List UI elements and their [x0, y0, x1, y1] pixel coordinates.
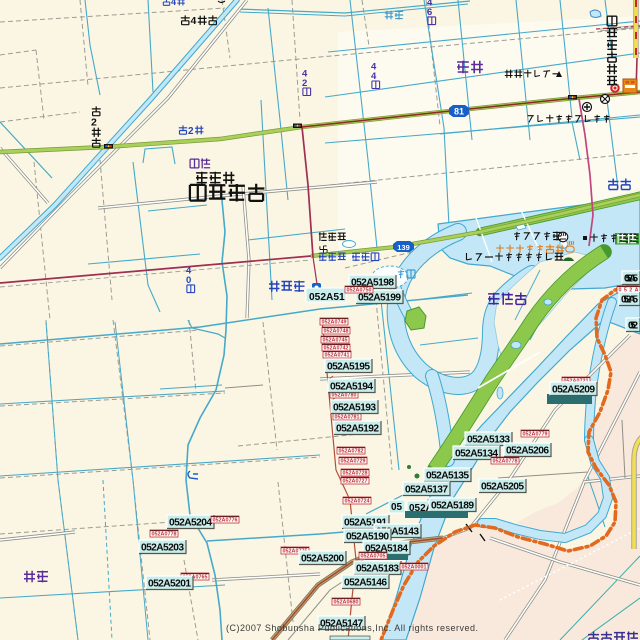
- svg-text:052A0749: 052A0749: [322, 320, 347, 326]
- svg-text:052A0728: 052A0728: [343, 471, 368, 477]
- svg-text:052A5137: 052A5137: [405, 485, 448, 496]
- svg-text:052A0745: 052A0745: [323, 338, 348, 344]
- svg-text:052A0729: 052A0729: [341, 459, 366, 465]
- svg-text:6: 6: [427, 7, 432, 18]
- svg-text:052A5146: 052A5146: [344, 578, 387, 589]
- svg-text:81: 81: [454, 107, 464, 117]
- svg-text:052A0001: 052A0001: [402, 565, 427, 571]
- svg-text:2: 2: [91, 117, 97, 129]
- svg-text:052A51: 052A51: [309, 292, 345, 303]
- svg-text:052A0780: 052A0780: [332, 393, 357, 399]
- svg-text:052A5201: 052A5201: [148, 579, 191, 590]
- svg-text:(C)2007 Shobunsha Publications: (C)2007 Shobunsha Publications,Inc. All …: [226, 623, 478, 633]
- svg-text:052A0776: 052A0776: [213, 518, 238, 524]
- svg-text:052A5209: 052A5209: [552, 385, 595, 396]
- svg-text:052A5135: 052A5135: [426, 471, 469, 482]
- svg-text:052A5: 052A5: [621, 295, 638, 306]
- svg-text:052A0705: 052A0705: [361, 554, 386, 560]
- svg-text:052A0741: 052A0741: [325, 353, 350, 359]
- svg-text:052A5: 052A5: [624, 274, 638, 285]
- svg-text:052A5183: 052A5183: [356, 564, 399, 575]
- svg-text:052A5192: 052A5192: [336, 424, 379, 435]
- svg-text:2: 2: [302, 78, 307, 89]
- svg-text:052A0779: 052A0779: [523, 432, 548, 438]
- svg-text:052A0724: 052A0724: [345, 499, 370, 505]
- svg-text:052A5205: 052A5205: [481, 482, 524, 493]
- svg-text:052A5194: 052A5194: [330, 382, 373, 393]
- svg-text:052A5195: 052A5195: [327, 362, 370, 373]
- svg-text:052A0750: 052A0750: [347, 288, 372, 294]
- svg-text:052A0727: 052A0727: [343, 479, 368, 485]
- svg-text:052A0680: 052A0680: [334, 600, 359, 606]
- svg-text:052A0778: 052A0778: [152, 532, 177, 538]
- svg-text:052A0778: 052A0778: [493, 459, 518, 465]
- svg-text:052: 052: [628, 321, 638, 332]
- svg-text:052A5199: 052A5199: [358, 293, 401, 304]
- svg-text:139: 139: [397, 243, 410, 252]
- svg-text:4: 4: [171, 0, 176, 7]
- svg-text:052A5189: 052A5189: [431, 501, 474, 512]
- svg-text:052A5200: 052A5200: [301, 554, 344, 565]
- svg-text:052A0748: 052A0748: [324, 329, 349, 335]
- svg-text:052A0782: 052A0782: [339, 449, 364, 455]
- svg-text:052A5203: 052A5203: [141, 543, 184, 554]
- svg-text:052A5204: 052A5204: [169, 518, 212, 529]
- svg-text:2: 2: [188, 126, 194, 137]
- svg-text:4: 4: [371, 71, 377, 82]
- svg-text:052A5193: 052A5193: [333, 403, 376, 414]
- svg-text:4: 4: [191, 15, 197, 27]
- svg-text:052A5206: 052A5206: [506, 446, 549, 457]
- svg-text:0: 0: [186, 275, 191, 286]
- svg-text:05: 05: [391, 502, 403, 513]
- svg-text:052A0781: 052A0781: [335, 415, 360, 421]
